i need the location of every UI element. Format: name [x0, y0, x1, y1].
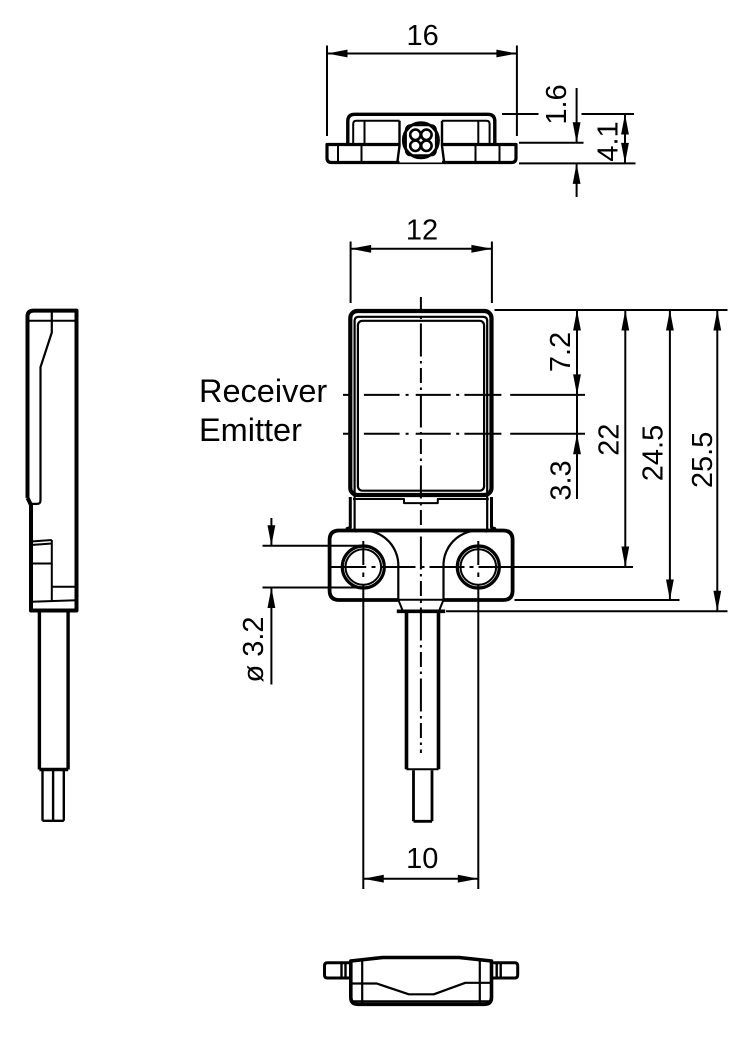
svg-text:16: 16	[406, 20, 438, 52]
svg-text:24.5: 24.5	[638, 425, 670, 481]
svg-text:ø 3.2: ø 3.2	[238, 616, 270, 682]
svg-text:3.3: 3.3	[545, 460, 577, 500]
svg-text:22: 22	[594, 424, 626, 456]
svg-text:10: 10	[406, 843, 438, 875]
svg-text:4.1: 4.1	[593, 121, 625, 161]
svg-text:7.2: 7.2	[545, 332, 577, 372]
svg-text:1.6: 1.6	[541, 84, 573, 124]
svg-text:Receiver: Receiver	[199, 373, 327, 409]
svg-text:12: 12	[406, 215, 438, 247]
svg-text:Emitter: Emitter	[199, 412, 302, 448]
svg-text:25.5: 25.5	[687, 432, 719, 488]
